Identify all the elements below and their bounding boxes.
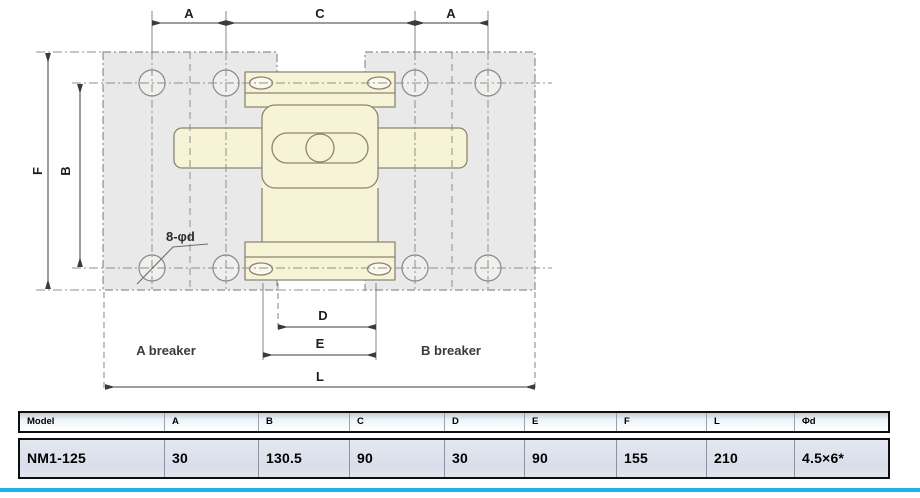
bottom-dimensions: D E L A breaker B breaker bbox=[104, 283, 535, 392]
top-mounting-plate bbox=[245, 72, 395, 107]
header-cell-model: Model bbox=[20, 413, 165, 431]
top-dimensions: A C A bbox=[152, 6, 488, 52]
header-cell-phi-d: Φd bbox=[795, 413, 888, 431]
dimension-table: Model A B C D E F L Φd NM1-125 30 130.5 … bbox=[18, 411, 890, 479]
handle-toggle bbox=[306, 134, 334, 162]
dim-label-c: C bbox=[315, 6, 325, 21]
dim-label-a-left: A bbox=[184, 6, 194, 21]
cell-model-value: NM1-125 bbox=[20, 440, 165, 477]
dim-label-a-right: A bbox=[446, 6, 456, 21]
dim-label-l: L bbox=[316, 369, 324, 384]
header-cell-e: E bbox=[525, 413, 617, 431]
dim-label-f: F bbox=[30, 167, 45, 175]
label-b-breaker: B breaker bbox=[421, 343, 481, 358]
left-dimensions: F B bbox=[30, 54, 80, 288]
mounting-dimension-drawing: A C A F B 8-φd bbox=[0, 0, 920, 402]
dim-label-b: B bbox=[58, 166, 73, 175]
dim-label-d: D bbox=[318, 308, 327, 323]
label-a-breaker: A breaker bbox=[136, 343, 196, 358]
left-terminal-tab bbox=[174, 128, 274, 168]
header-cell-f: F bbox=[617, 413, 707, 431]
hole-callout-label: 8-φd bbox=[166, 229, 195, 244]
cell-f-value: 155 bbox=[617, 440, 707, 477]
header-cell-c: C bbox=[350, 413, 445, 431]
header-cell-a: A bbox=[165, 413, 259, 431]
plate-slot bbox=[250, 263, 273, 275]
cell-a-value: 30 bbox=[165, 440, 259, 477]
header-cell-l: L bbox=[707, 413, 795, 431]
cell-l-value: 210 bbox=[707, 440, 795, 477]
cell-c-value: 90 bbox=[350, 440, 445, 477]
cell-phi-d-value: 4.5×6* bbox=[795, 440, 888, 477]
dimension-table-header-row: Model A B C D E F L Φd bbox=[18, 411, 890, 433]
cell-e-value: 90 bbox=[525, 440, 617, 477]
cell-b-value: 130.5 bbox=[259, 440, 350, 477]
dim-label-e: E bbox=[316, 336, 325, 351]
dimension-table-data-row: NM1-125 30 130.5 90 30 90 155 210 4.5×6* bbox=[18, 438, 890, 479]
header-cell-b: B bbox=[259, 413, 350, 431]
cell-d-value: 30 bbox=[445, 440, 525, 477]
page-accent-bar bbox=[0, 488, 920, 492]
header-cell-d: D bbox=[445, 413, 525, 431]
plate-slot bbox=[368, 263, 391, 275]
catalog-page: A C A F B 8-φd bbox=[0, 0, 920, 498]
